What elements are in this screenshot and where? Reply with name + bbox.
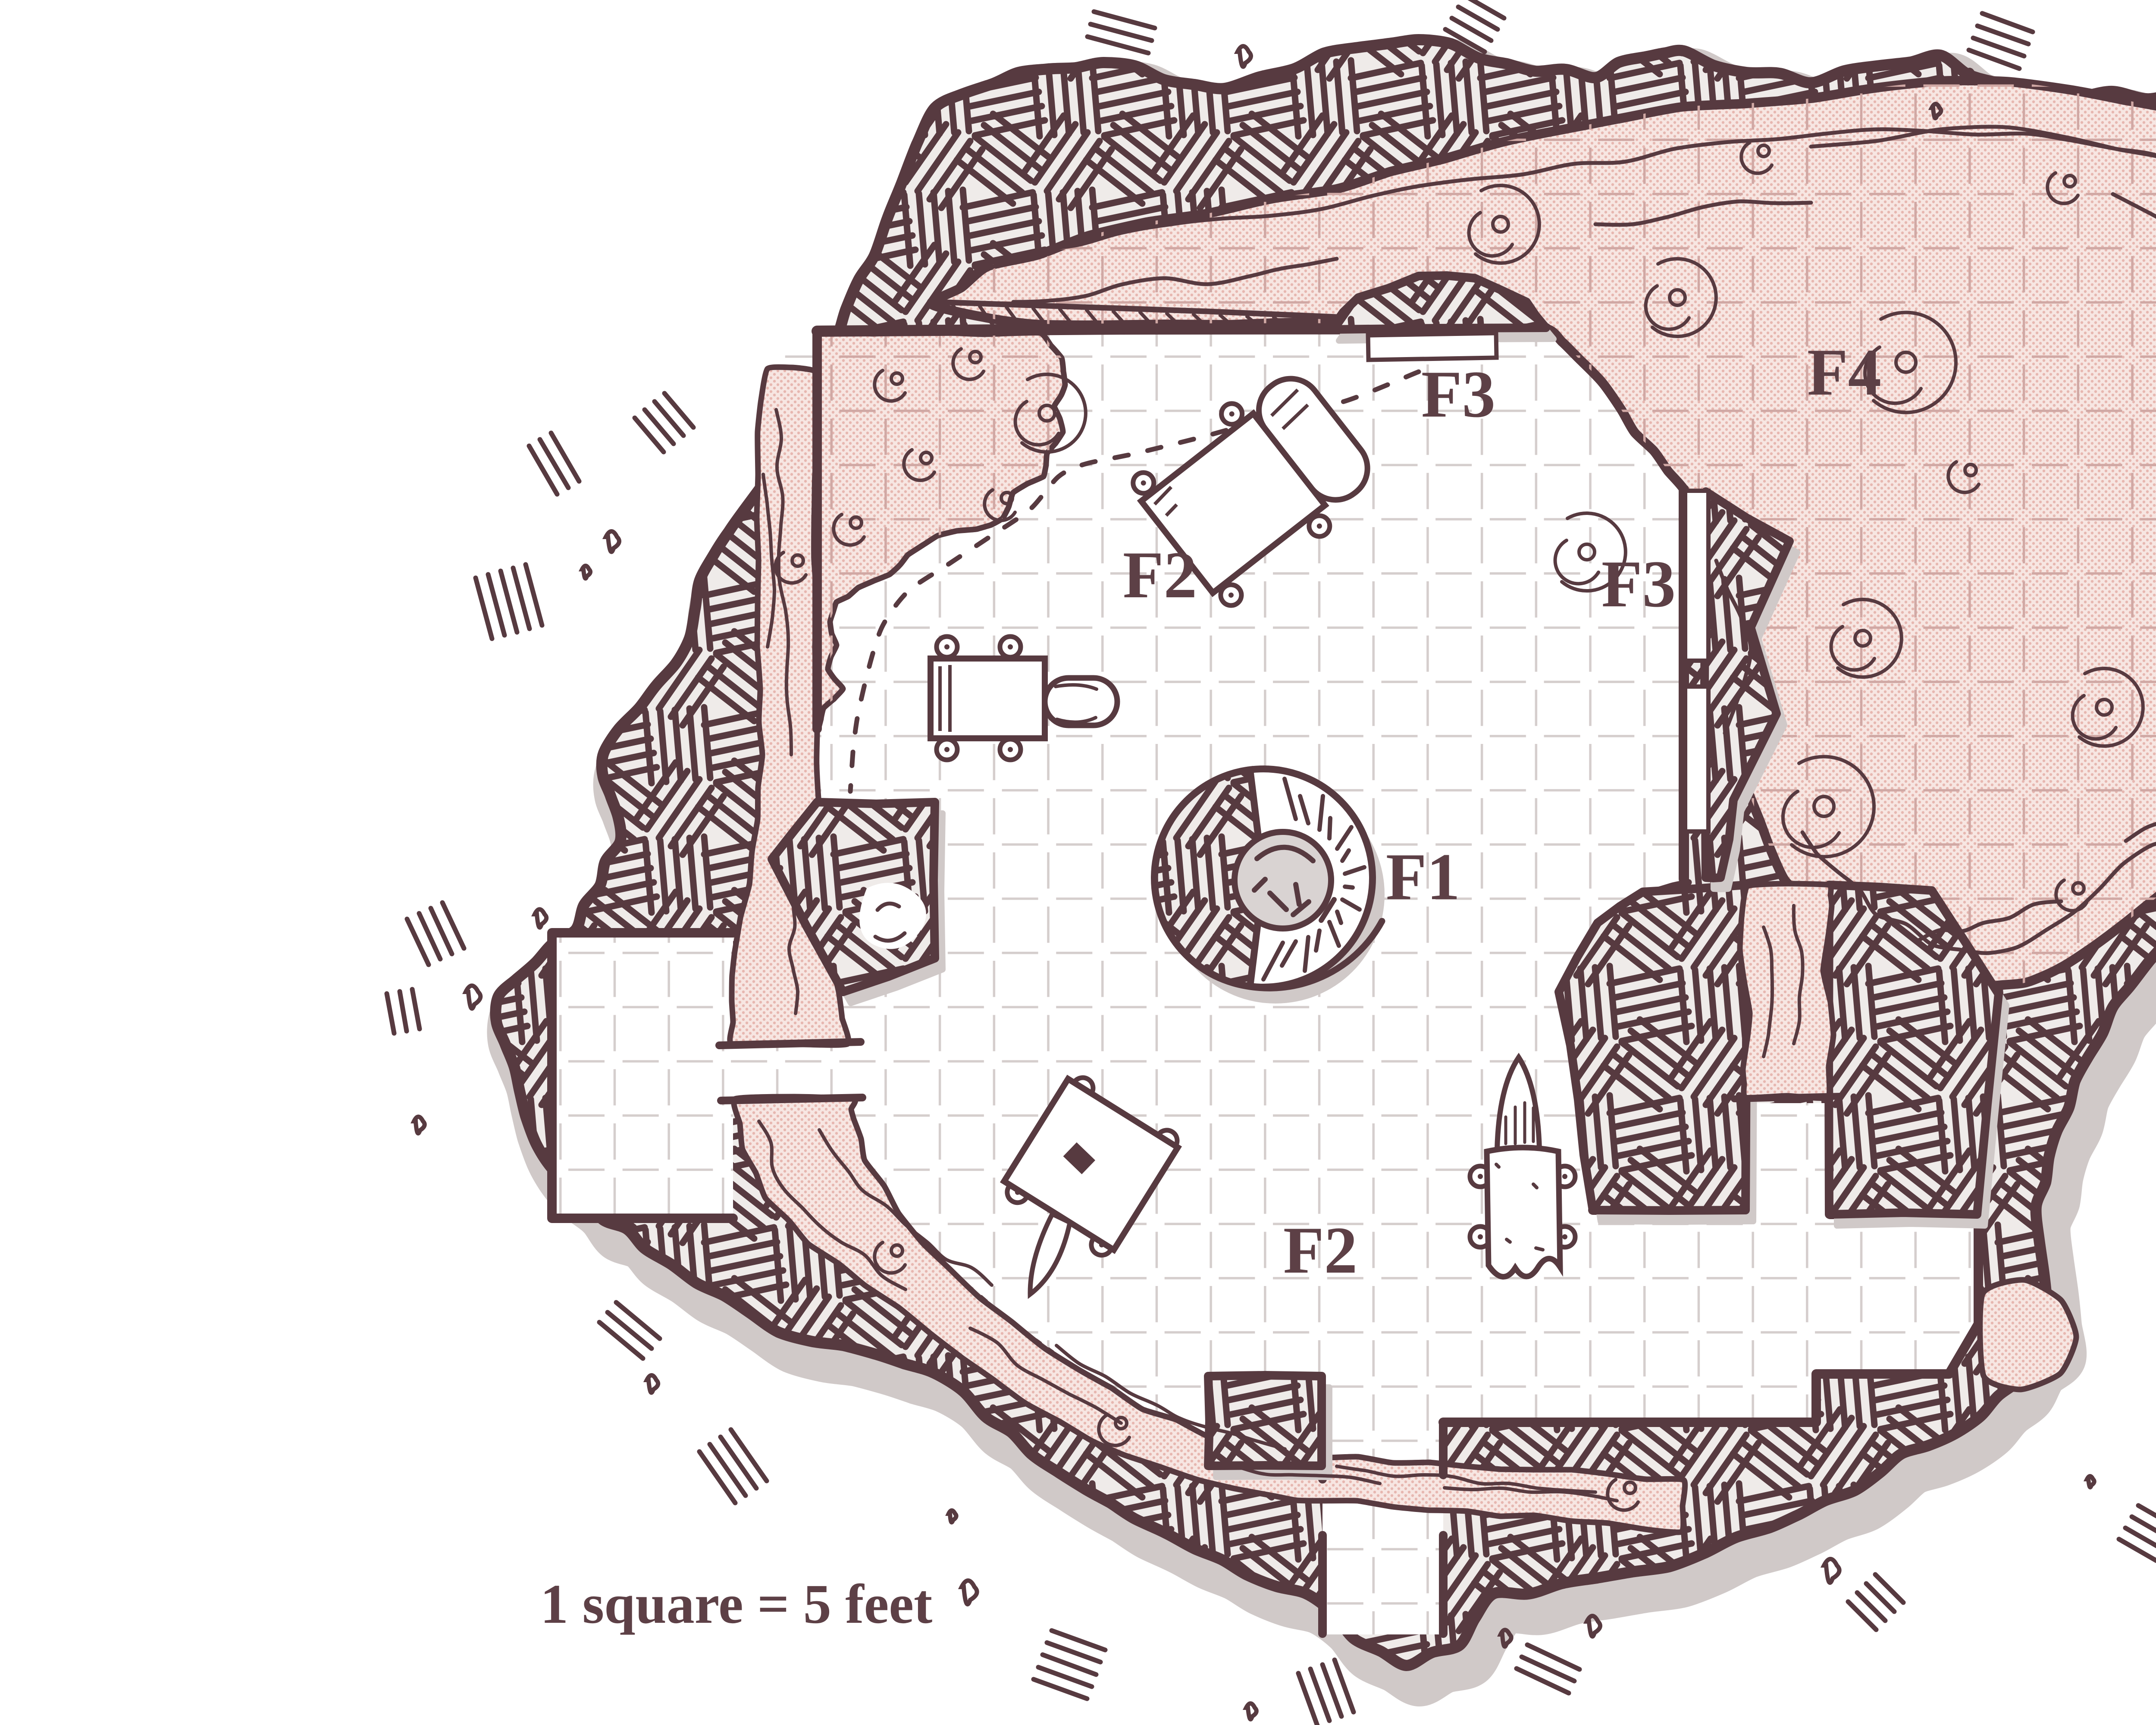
- svg-text:F4: F4: [1807, 335, 1881, 409]
- svg-text:1 square = 5 feet: 1 square = 5 feet: [540, 1573, 932, 1635]
- svg-text:F3: F3: [1601, 547, 1676, 621]
- svg-text:F2: F2: [1283, 1213, 1357, 1287]
- svg-text:F1: F1: [1386, 840, 1460, 914]
- svg-text:F3: F3: [1421, 357, 1495, 431]
- svg-text:F2: F2: [1123, 538, 1197, 612]
